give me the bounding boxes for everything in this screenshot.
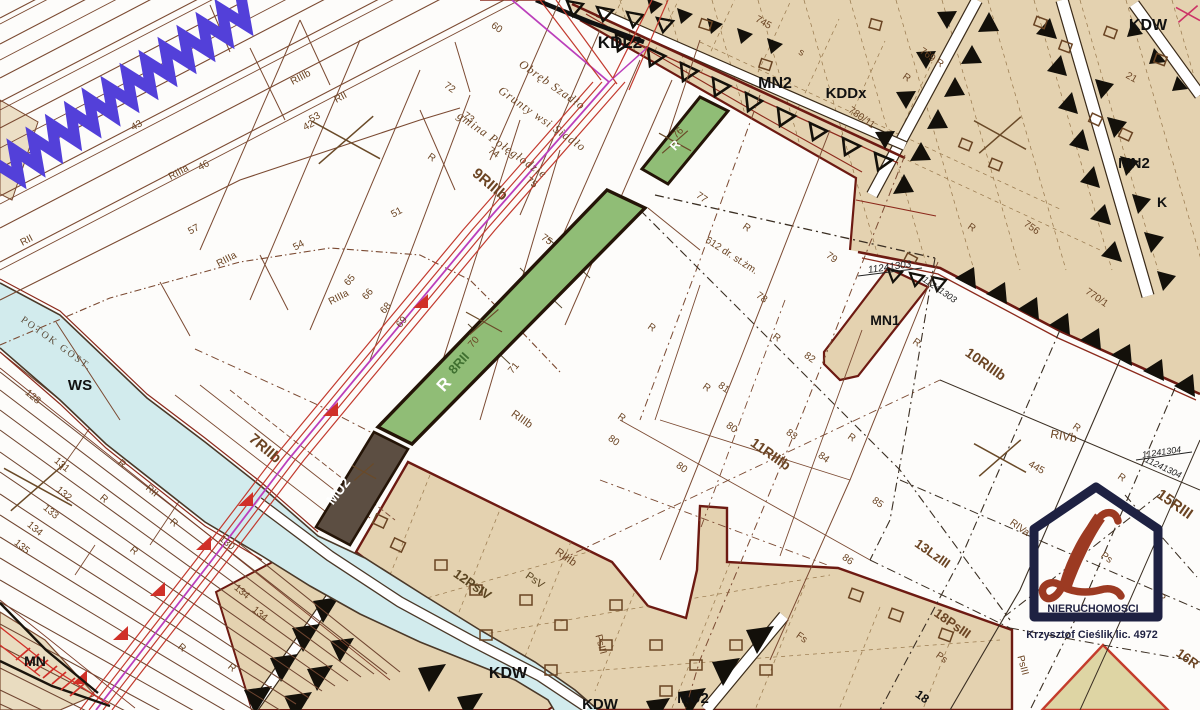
svg-text:MN2: MN2 <box>1118 155 1150 172</box>
svg-text:K: K <box>1157 194 1167 210</box>
svg-text:MN2: MN2 <box>758 75 792 92</box>
svg-text:KDL2: KDL2 <box>598 33 642 52</box>
svg-text:KDW: KDW <box>489 665 528 682</box>
svg-text:MN: MN <box>24 653 46 669</box>
svg-text:WS: WS <box>68 377 92 394</box>
svg-text:NIERUCHOMOSCI: NIERUCHOMOSCI <box>1047 603 1138 615</box>
svg-text:MU2: MU2 <box>677 690 709 707</box>
svg-text:KDDx: KDDx <box>826 85 867 102</box>
svg-text:MN1: MN1 <box>870 312 900 328</box>
svg-text:KDW: KDW <box>582 696 619 710</box>
svg-text:KDW: KDW <box>1129 17 1168 34</box>
svg-text:Krzysztof Cieślik lic. 4972: Krzysztof Cieślik lic. 4972 <box>1026 629 1157 641</box>
